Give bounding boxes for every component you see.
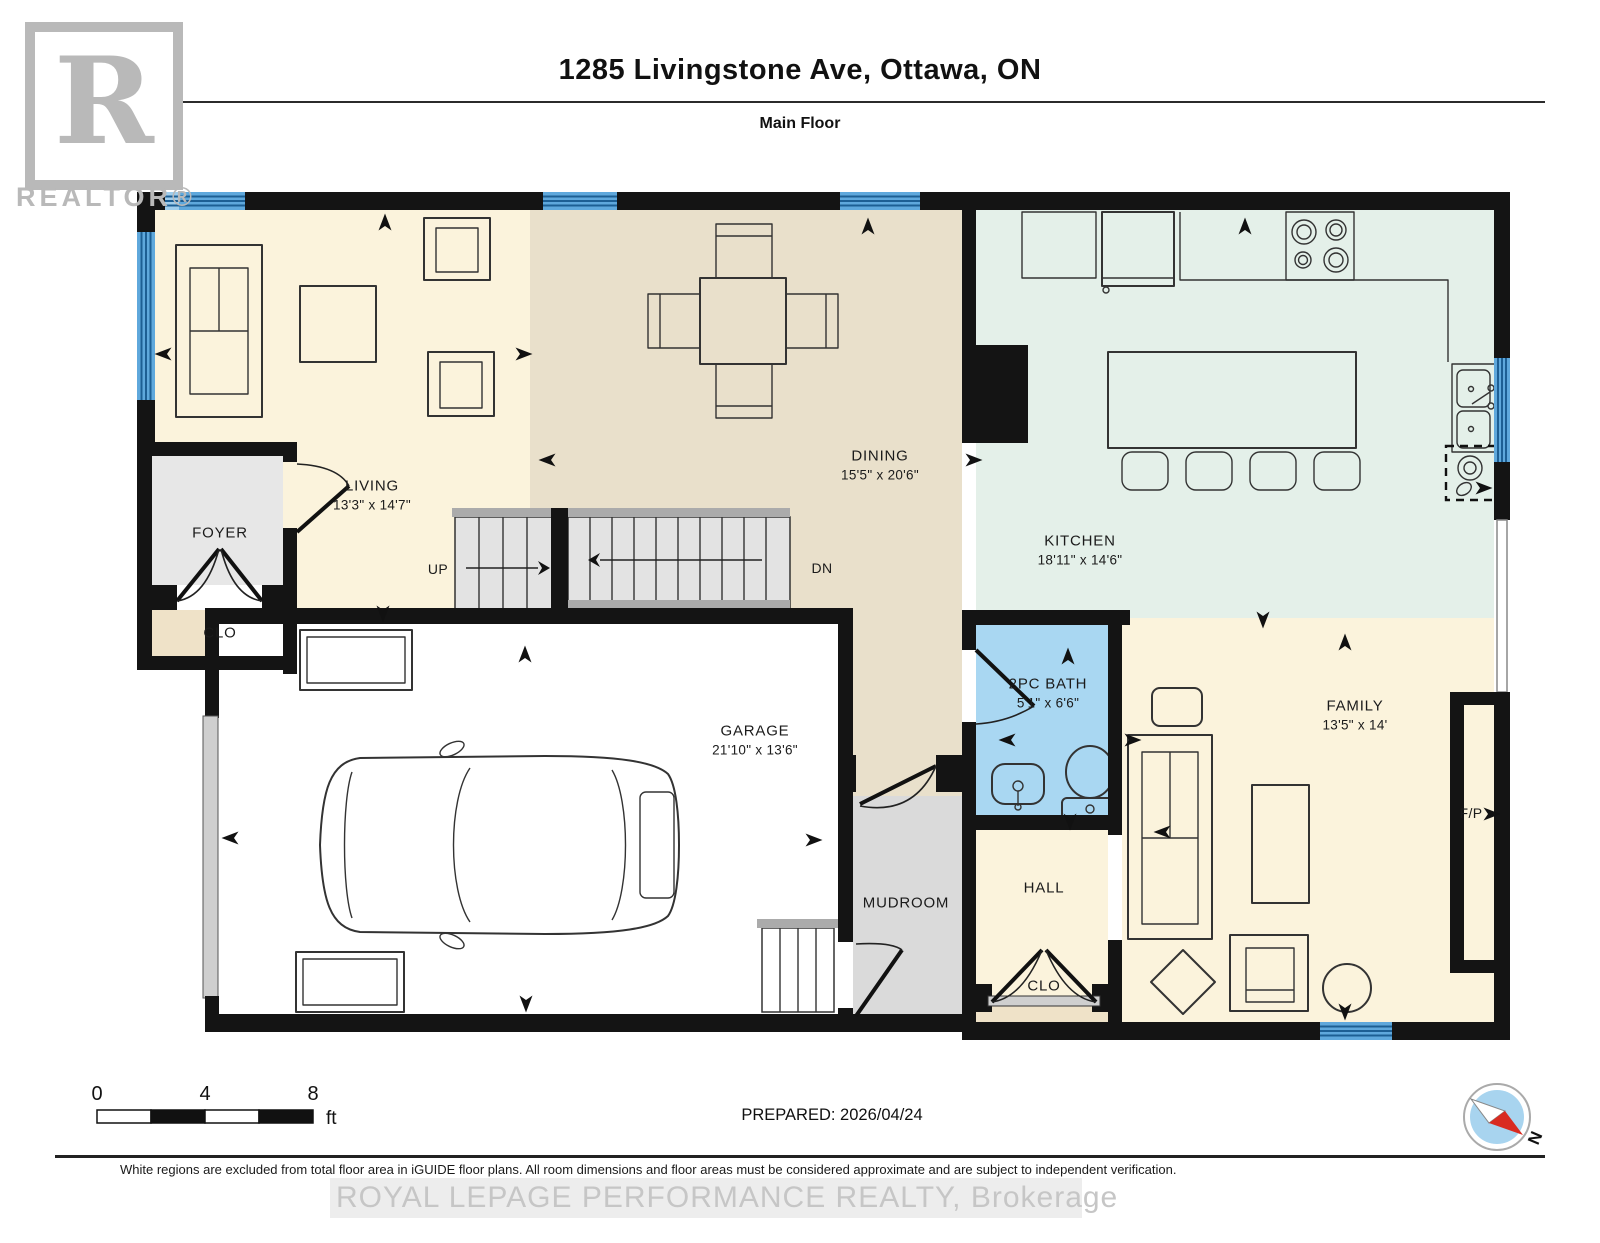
- entry-threshold: [177, 585, 262, 611]
- window-dining-top-1: [543, 192, 617, 210]
- room-label-mudroom: MUDROOM: [863, 893, 949, 913]
- window-kitchen-right: [1494, 358, 1510, 462]
- scale-tick-8: 8: [307, 1083, 318, 1105]
- footer-divider: [55, 1155, 1545, 1158]
- stairs-down-label: DN: [811, 559, 832, 577]
- room-label-kitchen: KITCHEN 18'11" x 14'6": [1038, 531, 1123, 568]
- side-wall-thin: [1497, 520, 1507, 692]
- scale-unit: ft: [326, 1108, 337, 1129]
- window-dining-top-2: [840, 192, 920, 210]
- window-family-bottom: [1320, 1022, 1392, 1040]
- garage-door: [203, 716, 218, 998]
- realtor-logo: R: [25, 22, 183, 190]
- room-label-garage: GARAGE 21'10" x 13'6": [712, 721, 798, 758]
- bath-floor: [976, 620, 1108, 818]
- realtor-wordmark: REALTOR®: [16, 182, 196, 213]
- stair-divider-wall: [551, 508, 568, 620]
- room-label-foyer: FOYER: [192, 523, 248, 543]
- scale-bar: 0 4 8 ft: [91, 1083, 337, 1129]
- stairs-up-label: UP: [428, 560, 448, 578]
- car: [320, 738, 679, 952]
- room-label-bath: 2PC BATH 5'1" x 6'6": [1009, 674, 1088, 711]
- scale-tick-0: 0: [91, 1083, 102, 1105]
- room-label-hall: HALL: [1024, 878, 1065, 898]
- brokerage-watermark: ROYAL LEPAGE PERFORMANCE REALTY, Brokera…: [330, 1178, 1082, 1218]
- room-label-living: LIVING 13'3" x 14'7": [333, 476, 411, 513]
- room-label-dining: DINING 15'5" x 20'6": [841, 446, 919, 483]
- stairs-down: [568, 508, 790, 612]
- garage-steps: [757, 919, 839, 1012]
- window-living-left: [137, 232, 155, 400]
- compass-icon: N: [1464, 1084, 1546, 1150]
- hall-floor: [976, 818, 1108, 1003]
- disclaimer-text: White regions are excluded from total fl…: [120, 1162, 1176, 1177]
- room-label-hall-closet: CLO: [1027, 976, 1060, 996]
- stairs-up: [452, 508, 556, 612]
- room-label-foyer-closet: CLO: [203, 623, 236, 643]
- prepared-date: PREPARED: 2026/04/24: [712, 1106, 952, 1125]
- room-label-family: FAMILY 13'5" x 14': [1322, 696, 1387, 733]
- scale-tick-4: 4: [199, 1083, 210, 1105]
- room-label-fireplace: F/P: [1460, 804, 1483, 822]
- realtor-r-icon: R: [54, 42, 154, 162]
- floor-plan-drawing: 0 4 8 ft N: [0, 0, 1600, 1243]
